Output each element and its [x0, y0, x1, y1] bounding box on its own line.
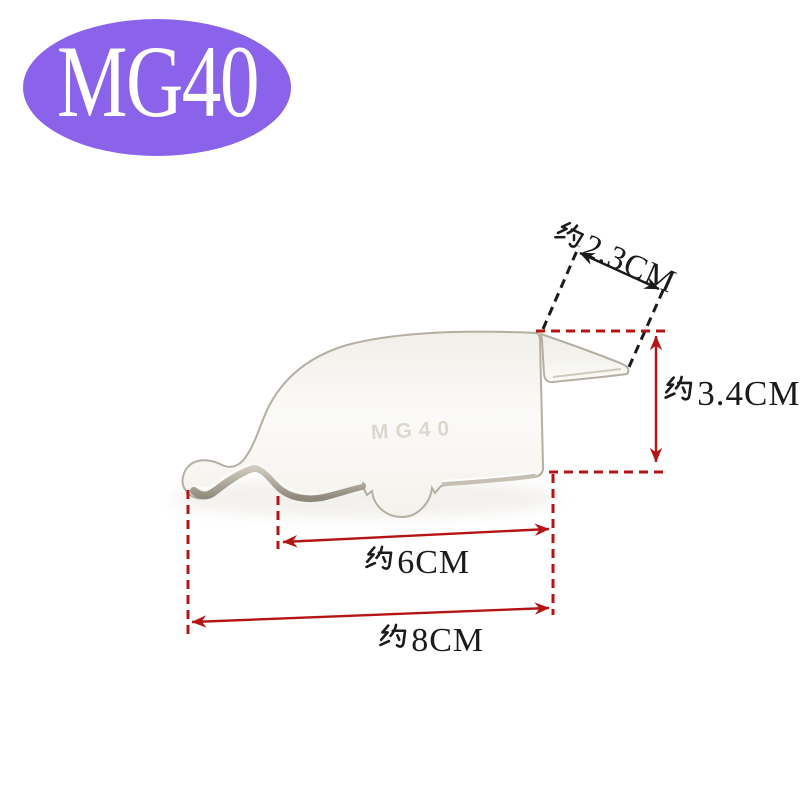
dimension-arrow-overall-width — [192, 608, 549, 622]
extension-line-flap-right — [629, 286, 665, 367]
product-listing-image: MG40 MG40 2.3CM 3.4CM 6CM 8CM — [0, 0, 800, 800]
approx-character-icon — [661, 375, 694, 408]
dimension-value: 3.4CM — [697, 376, 800, 411]
part-engraving: MG40 — [370, 417, 456, 445]
dimension-arrow-inner-width — [283, 529, 549, 542]
dimension-value: 8CM — [411, 624, 484, 658]
model-badge: MG40 — [23, 19, 291, 156]
dimension-label-overall-width: 8CM — [360, 624, 500, 658]
metal-tab-flap — [541, 334, 628, 382]
approx-character-icon — [362, 545, 394, 577]
approx-character-icon — [376, 623, 408, 655]
dimension-label-inner-width: 6CM — [350, 546, 482, 580]
dimension-value: 6CM — [397, 546, 470, 580]
model-badge-label: MG40 — [57, 31, 258, 144]
dimension-label-side-height: 3.4CM — [661, 376, 800, 411]
